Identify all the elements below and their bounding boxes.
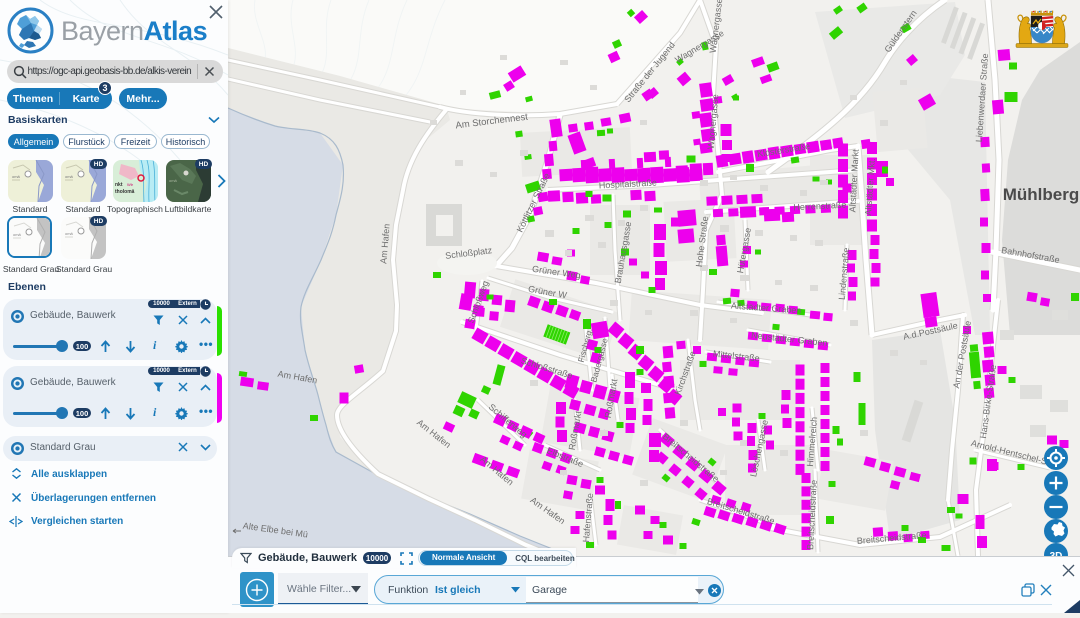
svg-text:Mühlberg: Mühlberg (1003, 185, 1080, 204)
svg-text:nkt: nkt (115, 182, 123, 188)
svg-text:omä: omä (65, 174, 74, 179)
svg-text:Wlr: Wlr (127, 182, 134, 187)
svg-text:omä: omä (13, 232, 22, 237)
svg-text:tholomä: tholomä (115, 189, 135, 195)
svg-text:omä: omä (65, 231, 74, 236)
svg-text:omä: omä (169, 178, 178, 183)
svg-text:omä: omä (12, 174, 21, 179)
